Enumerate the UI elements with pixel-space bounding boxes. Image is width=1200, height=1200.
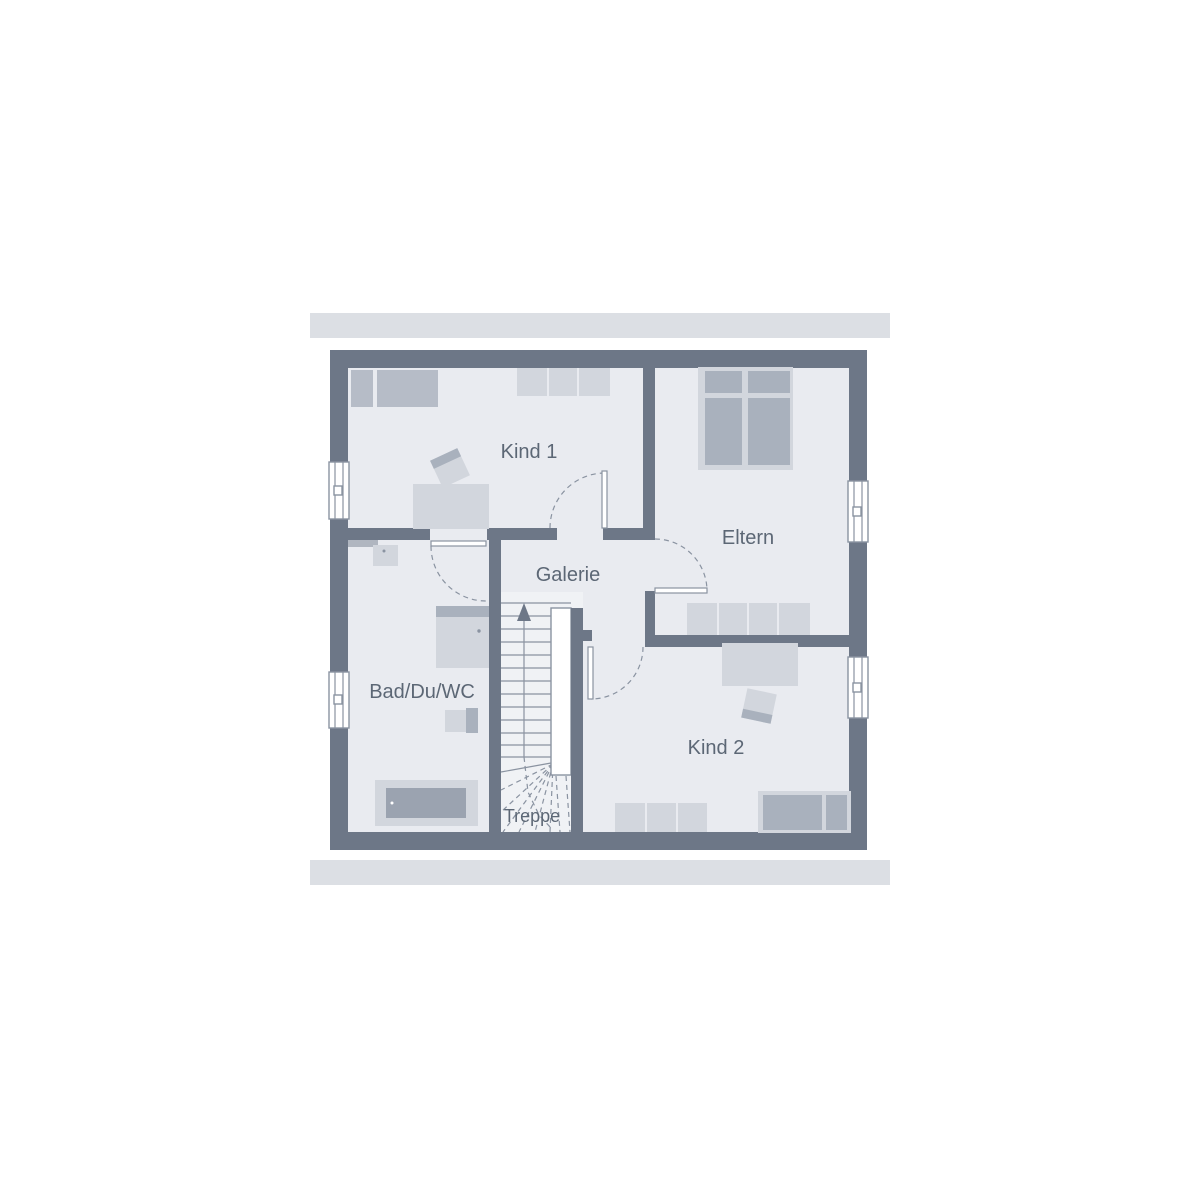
door-leaf-eltern xyxy=(655,588,707,593)
bed-pillow-right-eltern xyxy=(748,371,790,393)
bed-mattress-right-eltern xyxy=(748,398,790,465)
wall-stairs-kind2 xyxy=(571,608,583,832)
chair-kind2 xyxy=(741,688,777,724)
window-handle xyxy=(334,486,342,495)
sink xyxy=(373,545,398,566)
wall-kind1-bad xyxy=(348,528,430,540)
shower-drain xyxy=(477,629,480,632)
floor-plan-drawing: Kind 1 Eltern Galerie Bad/Du/WC Kind 2 T… xyxy=(0,0,1200,1200)
desk-kind2 xyxy=(722,643,798,686)
window-handle xyxy=(853,507,861,516)
outer-wall-top xyxy=(330,350,867,368)
outer-wall-right xyxy=(849,350,867,850)
room-label-galerie: Galerie xyxy=(536,564,600,586)
wall-eltern-door-post xyxy=(645,591,655,641)
roof-band-top xyxy=(310,313,890,338)
outer-wall-left xyxy=(330,350,348,850)
room-label-treppe: Treppe xyxy=(504,806,560,826)
bathtub xyxy=(386,788,466,818)
stairwell-void xyxy=(551,608,571,775)
room-label-bad: Bad/Du/WC xyxy=(369,681,475,703)
room-label-kind2: Kind 2 xyxy=(688,737,745,759)
window-eltern-right xyxy=(848,481,868,542)
room-label-kind1: Kind 1 xyxy=(501,441,558,463)
toilet-bowl xyxy=(445,710,466,732)
roof-band-bottom xyxy=(310,860,890,885)
floor-plan: Kind 1 Eltern Galerie Bad/Du/WC Kind 2 T… xyxy=(0,0,1200,1200)
wall-galerie-eltern xyxy=(643,368,655,540)
room-label-eltern: Eltern xyxy=(722,527,774,549)
bed-pillow-kind2 xyxy=(826,795,847,830)
sink-faucet xyxy=(383,550,386,553)
door-leaf-bad xyxy=(431,541,486,546)
bathtub-drain xyxy=(391,802,394,805)
window-handle xyxy=(334,695,342,704)
shelf-kind2 xyxy=(615,803,707,832)
toilet-cistern xyxy=(466,708,478,733)
wardrobe-kind1 xyxy=(517,368,610,396)
bed-mattress-kind2 xyxy=(763,795,822,830)
bed-pillow-left-eltern xyxy=(705,371,742,393)
window-bad-left xyxy=(329,672,349,728)
outer-wall-bottom xyxy=(330,832,867,850)
bed-pillow-kind1 xyxy=(351,370,373,407)
shower-head-wall xyxy=(436,606,489,617)
window-kind1-left xyxy=(329,462,349,519)
door-leaf-kind1 xyxy=(602,471,607,528)
window-kind2-right xyxy=(848,657,868,718)
bed-mattress-left-eltern xyxy=(705,398,742,465)
door-leaf-kind2 xyxy=(588,647,593,699)
wall-bad-stairs xyxy=(489,528,501,832)
desk-kind1 xyxy=(413,484,489,529)
bed-kind1 xyxy=(377,370,438,407)
window-handle xyxy=(853,683,861,692)
